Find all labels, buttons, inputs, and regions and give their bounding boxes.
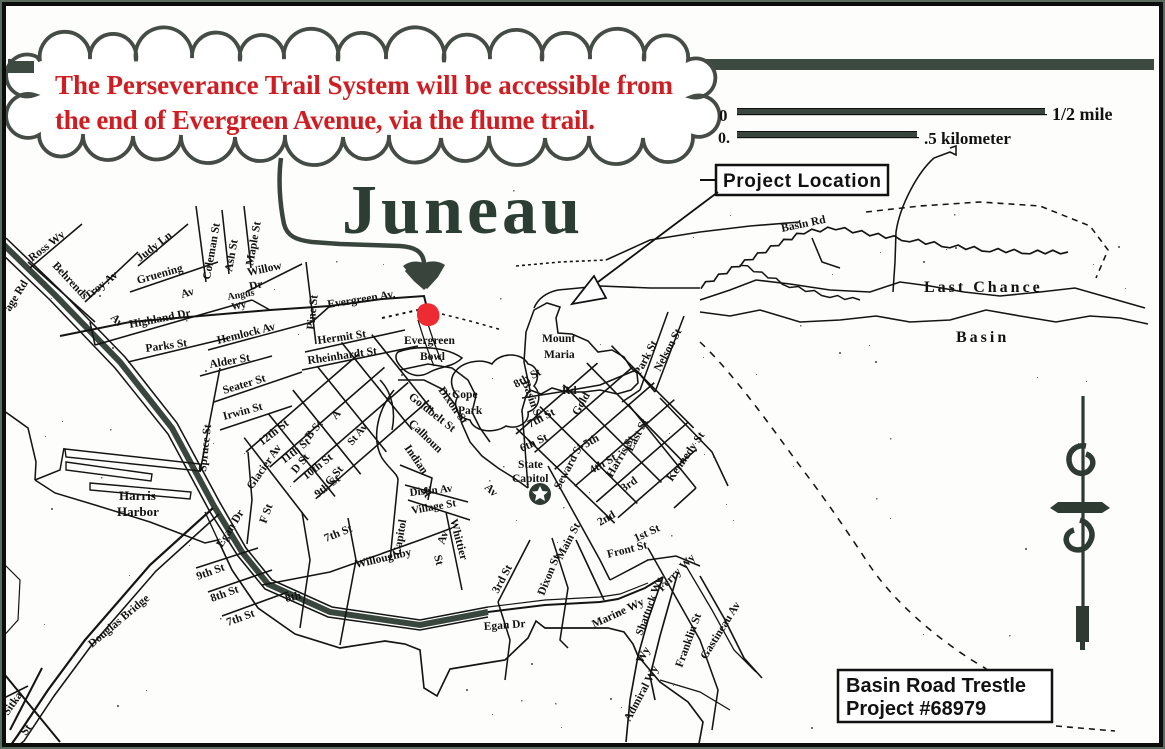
svg-text:Harbor: Harbor: [117, 504, 159, 519]
svg-text:The Perseverance Trail System: The Perseverance Trail System will be ac…: [55, 70, 674, 100]
svg-text:.5 kilometer: .5 kilometer: [924, 129, 1011, 148]
svg-text:Basin Road Trestle: Basin Road Trestle: [846, 675, 1026, 697]
svg-text:Basin: Basin: [956, 329, 1009, 346]
svg-text:Park: Park: [458, 405, 483, 417]
svg-text:State: State: [518, 459, 543, 471]
svg-text:Maria: Maria: [544, 349, 575, 361]
svg-text:Evergreen: Evergreen: [404, 335, 455, 347]
svg-text:Harris: Harris: [119, 488, 156, 503]
svg-text:Mount: Mount: [542, 333, 575, 345]
svg-text:the end of Evergreen Avenue, v: the end of Evergreen Avenue, via the flu…: [55, 105, 595, 135]
svg-text:0.: 0.: [718, 130, 730, 147]
svg-text:Capitol: Capitol: [512, 473, 548, 485]
svg-text:1/2 mile: 1/2 mile: [1052, 104, 1113, 124]
svg-text:Cope: Cope: [452, 389, 478, 401]
svg-text:Project Location: Project Location: [723, 171, 881, 192]
svg-text:Project #68979: Project #68979: [846, 698, 986, 720]
svg-text:0: 0: [719, 106, 728, 125]
svg-text:Last Chance: Last Chance: [924, 279, 1043, 296]
svg-text:Rd: Rd: [562, 385, 577, 397]
svg-text:Bowl: Bowl: [420, 351, 445, 363]
